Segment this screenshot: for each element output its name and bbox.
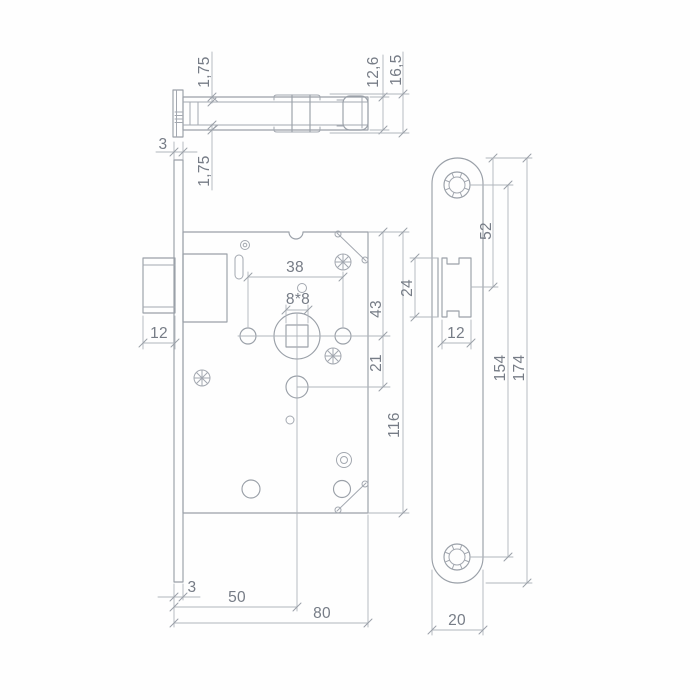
dim-backset-label: 50: [228, 589, 246, 606]
dim-spindle-square-label: 8*8: [286, 291, 310, 308]
corner-rivet-top-right: [335, 231, 368, 263]
lower-hole-left: [242, 480, 260, 498]
dim-lip-back-label: 1,75: [196, 155, 213, 186]
bushing-ring: [337, 453, 352, 468]
dim-faceplate-thickness-top: 3: [156, 136, 197, 159]
dim-plate-width-label: 20: [448, 612, 466, 629]
pin-hole-small: [286, 416, 294, 424]
lock-case-outline: [183, 232, 368, 513]
dim-lip-back: 1,75: [196, 121, 216, 190]
torx-screw-top: [335, 254, 351, 270]
lower-hole-right: [334, 481, 351, 498]
dim-spindle-to-cylinder-label: 21: [368, 354, 385, 372]
dim-latch-throw: 12: [139, 316, 179, 349]
lock-body-profile: [183, 97, 368, 130]
dim-plate-length-label: 174: [511, 355, 528, 382]
front-view: 12 38 8*8 43 21: [139, 160, 409, 627]
faceplate-bar: [174, 160, 183, 582]
dim-case-thickness: 12,6: [365, 55, 389, 134]
latch-housing: [183, 254, 227, 322]
torx-screw-left: [194, 370, 210, 386]
dim-faceplate-thickness-top-label: 3: [159, 136, 168, 153]
dim-hole-spacing-label: 38: [286, 259, 304, 276]
latch-bolt: [143, 258, 175, 313]
lock-drawing-canvas: 1,75 12,6 16,5 3 1: [0, 0, 700, 700]
dim-edge-to-spindle-label: 43: [368, 300, 385, 318]
dim-latch-width-label: 12: [447, 325, 465, 342]
faceplate-view: 24 12 52 154: [399, 154, 532, 635]
dim-case-depth: 80: [170, 515, 372, 627]
spindle-hub-profile: [274, 95, 320, 132]
dim-faceplate-thickness-bottom: 3: [158, 579, 200, 627]
dim-edge-to-spindle: 43 21: [368, 228, 389, 391]
faceplate-screw-top: [444, 172, 470, 198]
faceplate-screw-bottom: [444, 544, 470, 570]
small-screw: [241, 241, 250, 250]
dim-case-height-label: 116: [386, 412, 403, 438]
dim-latch-height: 24: [399, 254, 437, 321]
dim-latch-height-label: 24: [399, 279, 416, 297]
dim-plate-width: 20: [428, 570, 487, 635]
faceplate-edge-profile: [173, 90, 183, 137]
faceplate-outline: [432, 158, 483, 583]
dim-case-thickness-label: 12,6: [365, 56, 382, 87]
dim-hub-height-label: 16,5: [388, 54, 405, 85]
oval-slot: [235, 255, 243, 279]
dim-latch-throw-label: 12: [150, 325, 168, 342]
technical-drawing-page: 1,75 12,6 16,5 3 1: [0, 0, 700, 700]
dim-latch-width: 12: [438, 320, 475, 349]
dim-case-depth-label: 80: [313, 605, 331, 622]
dim-top-to-latch-label: 52: [478, 222, 495, 240]
dim-lip-front-label: 1,75: [196, 56, 213, 87]
top-view: 1,75 12,6 16,5 3 1: [156, 52, 409, 190]
torx-screw-middle: [325, 348, 341, 364]
dim-screw-spacing-label: 154: [492, 355, 509, 382]
latch-side-profile: [438, 258, 471, 317]
dim-top-to-latch: 52: [471, 154, 498, 291]
dim-faceplate-thickness-bottom-label: 3: [188, 579, 197, 596]
